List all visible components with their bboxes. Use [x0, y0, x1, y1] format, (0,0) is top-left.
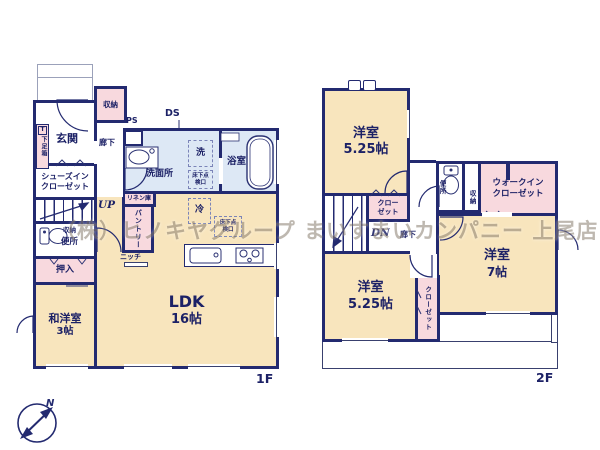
balcony-side [551, 311, 558, 343]
bathroom-label: 浴室 [227, 157, 246, 167]
window [342, 338, 388, 343]
tatami-room-size: 3帖 [57, 326, 74, 339]
underfloor-hatch-washroom: 床下点検口 [188, 170, 213, 189]
room-wic: ウォークイン クローゼット [478, 161, 558, 216]
room-2f-top-size: 5.25帖 [343, 142, 388, 158]
compass-north-label: N [46, 398, 55, 409]
wic-line2: クローゼット [492, 189, 543, 200]
underfloor-hatch-washroom-label: 床下点検口 [191, 173, 210, 185]
storage-top-label: 収納 [103, 100, 118, 109]
washer-box: 洗 [188, 140, 213, 167]
kitchen-counter [184, 244, 276, 267]
watermark: （株）ヒノキヤグループ まいすまいカンパニー 上尾店 [55, 215, 600, 245]
compass-icon: N [18, 398, 56, 442]
room-2f-bottom-name: 洋室 [357, 280, 383, 296]
ds-label: DS [165, 109, 180, 119]
corridor-2f-door-nook [410, 254, 437, 278]
linen-label: リネン庫 [127, 195, 151, 203]
closet-2f-label: クローゼット [423, 286, 431, 331]
casement-window [363, 80, 376, 91]
washer-label: 洗 [196, 149, 205, 159]
oshiire-label: 押入 [56, 265, 74, 276]
shoe-box-tag: T [38, 126, 46, 135]
floor1-label: 1F [256, 372, 273, 386]
window [407, 110, 412, 138]
niche-shape [124, 262, 148, 267]
room-2f-right-name: 洋室 [484, 248, 510, 264]
tatami-room-name: 和洋室 [49, 312, 82, 326]
room-2f-right-size: 7帖 [487, 265, 507, 280]
balcony [322, 341, 558, 369]
room-2f-bottom: 洋室 5.25帖 [322, 251, 419, 342]
genkan-label: 玄関 [56, 133, 78, 145]
bath-door-opening [219, 158, 223, 184]
porch-step-line [37, 77, 93, 78]
shoes-closet-line1: シューズイン [41, 172, 89, 182]
casement-window [348, 80, 361, 91]
window [274, 140, 279, 184]
shoe-box-label: 下足箱 [39, 136, 46, 157]
floor2-label: 2F [536, 371, 553, 385]
toilet-2f-label: 便所 [438, 180, 445, 195]
storage-2f-label: 収納 [468, 190, 476, 205]
pipe-space [124, 130, 143, 146]
room-2f-top-name: 洋室 [353, 126, 379, 142]
room-tatami: 和洋室 3帖 [33, 282, 97, 369]
ps-label: PS [126, 117, 138, 126]
room-oshiire: 押入 [33, 256, 97, 285]
entrance-porch [37, 64, 93, 104]
shoes-closet-line2: クローゼット [41, 182, 89, 192]
window [46, 364, 88, 369]
corridor-1f [97, 123, 123, 197]
ldk-size: 16帖 [171, 312, 202, 328]
niche-label: ニッチ [120, 254, 141, 262]
corridor-1f-label: 廊下 [99, 139, 115, 148]
wall-stub [506, 161, 510, 180]
washroom-label: 洗面所 [146, 170, 173, 180]
shoe-box: T 下足箱 [36, 124, 49, 169]
window [274, 243, 279, 269]
ldk-name: LDK [169, 292, 205, 312]
room-2f-top: 洋室 5.25帖 [322, 88, 410, 196]
storage-top-1f: 収納 [94, 86, 127, 123]
wic-line1: ウォークイン [492, 178, 543, 189]
window [486, 311, 530, 316]
window [274, 297, 279, 337]
room-2f-bottom-size: 5.25帖 [348, 297, 393, 313]
closet-2f-vertical: クローゼット [415, 275, 440, 342]
hall-closet-line1: クロー [378, 199, 399, 208]
window [188, 364, 240, 369]
stairs-up-label: UP [98, 200, 115, 212]
floorplan-canvas: 玄関 T 下足箱 収納 廊下 シューズイン クローゼット UP 収納 便所 押入… [0, 0, 600, 450]
window [124, 364, 172, 369]
